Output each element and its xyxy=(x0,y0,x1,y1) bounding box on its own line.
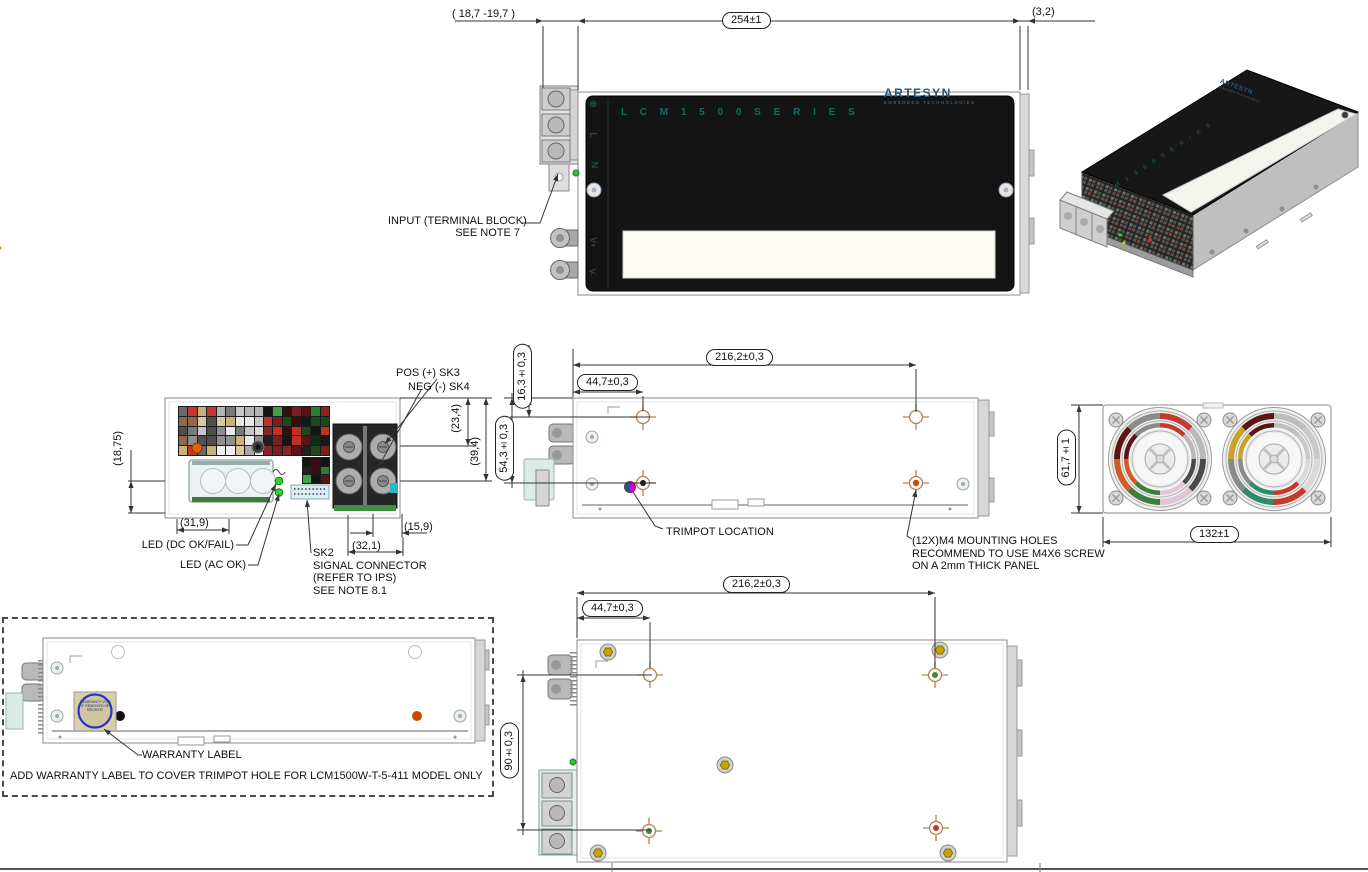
dim-18-75: (18,75) xyxy=(112,431,124,466)
callout-m4-line2: RECOMMEND TO USE M4X6 SCREW xyxy=(912,548,1105,560)
callout-pos-sk3: POS (+) SK3 xyxy=(396,367,460,379)
dim-23-4: (23,4) xyxy=(450,404,462,433)
front-panel-knobs xyxy=(192,441,264,453)
callout-sk2-line3: (REFER TO IPS) xyxy=(313,572,396,584)
dim-side-216: 216,2±0,3 xyxy=(706,349,773,366)
vminus-label: V- xyxy=(587,269,596,277)
callout-input-terminal: INPUT (TERMINAL BLOCK) SEE NOTE 7 xyxy=(388,215,520,239)
callout-neg-sk4: NEG (-) SK4 xyxy=(408,381,470,393)
callout-input-line1: INPUT (TERMINAL BLOCK) xyxy=(388,215,527,227)
callout-input-line2: SEE NOTE 7 xyxy=(455,227,520,239)
callout-m4-holes: (12X)M4 MOUNTING HOLES RECOMMEND TO USE … xyxy=(912,535,1105,573)
warranty-seal-text: "WARRANTY VOID IF REMOVED OR BROKEN" xyxy=(79,700,112,713)
callout-m4-line1: (12X)M4 MOUNTING HOLES xyxy=(912,535,1057,547)
dimension-linework xyxy=(0,0,1368,872)
dim-rear-height: 61,7±1 xyxy=(1057,430,1076,486)
dim-bottom-44: 44,7±0,3 xyxy=(582,600,643,617)
dim-3-2: (3,2) xyxy=(1032,6,1055,18)
callout-led-ac: LED (AC OK) xyxy=(160,559,246,571)
dimension-arrows xyxy=(104,18,1331,830)
neutral-terminal-label: N xyxy=(589,162,599,169)
series-logotype: L C M 1 5 0 0 S E R I E S xyxy=(621,107,860,118)
dim-39-4: (39,4) xyxy=(469,437,481,466)
dim-length-254: 254±1 xyxy=(722,12,771,29)
dim-side-16: 16,3±0,3 xyxy=(513,344,532,409)
dim-rear-width: 132±1 xyxy=(1190,526,1239,543)
engineering-drawing-sheet: ( 18,7 -19,7 ) 254±1 (3,2) INPUT (TERMIN… xyxy=(0,0,1368,872)
callout-sk2-line1: SK2 xyxy=(313,547,334,559)
callout-m4-line3: ON A 2mm THICK PANEL xyxy=(912,560,1039,572)
line-terminal-label: L xyxy=(589,132,599,137)
callout-sk2: SK2 SIGNAL CONNECTOR (REFER TO IPS) SEE … xyxy=(313,547,427,597)
ground-symbol: ⊕ xyxy=(589,99,597,110)
brand-subtitle: EMBEDDED TECHNOLOGIES xyxy=(884,98,976,108)
dim-overhang: ( 18,7 -19,7 ) xyxy=(452,8,515,20)
dim-15-9: (15,9) xyxy=(404,521,433,533)
dim-31-9: (31,9) xyxy=(180,517,209,529)
callout-sk2-line2: SIGNAL CONNECTOR xyxy=(313,560,427,572)
callout-sk2-line4: SEE NOTE 8.1 xyxy=(313,585,387,597)
warranty-note: ADD WARRANTY LABEL TO COVER TRIMPOT HOLE… xyxy=(10,770,483,782)
dim-side-54: 54,3±0,3 xyxy=(495,416,514,481)
dim-bottom-216: 216,2±0,3 xyxy=(723,576,790,593)
dim-bottom-90: 90±0,3 xyxy=(500,723,519,779)
brand-logo: ARTESYN EMBEDDED TECHNOLOGIES xyxy=(884,88,976,108)
callout-led-dc: LED (DC OK/FAIL) xyxy=(124,539,234,551)
callout-trimpot: TRIMPOT LOCATION xyxy=(666,526,774,538)
callout-warranty-label: WARRANTY LABEL xyxy=(142,749,242,761)
vplus-label: V+ xyxy=(589,237,598,247)
dim-side-44: 44,7±0,3 xyxy=(577,374,638,391)
